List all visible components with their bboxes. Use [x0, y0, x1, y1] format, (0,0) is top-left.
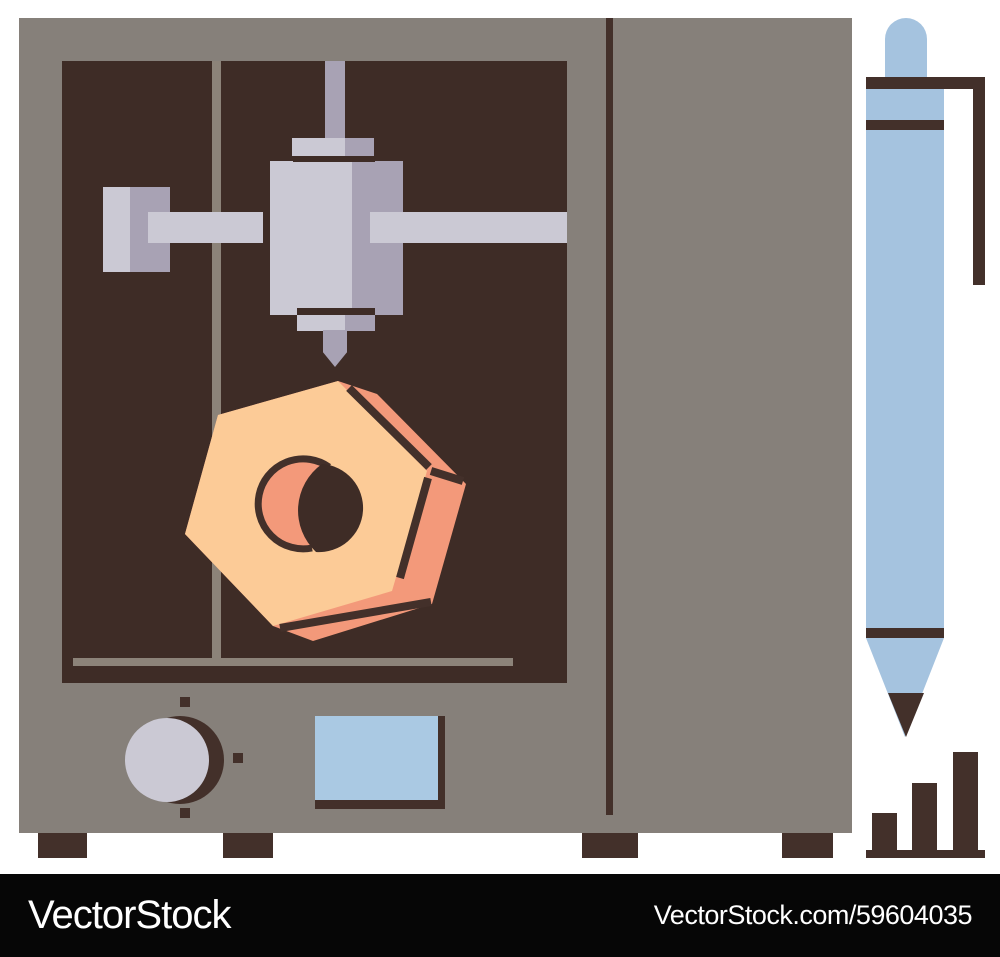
pencil-clip — [973, 89, 985, 285]
knob-tick-right — [233, 753, 243, 763]
gantry-rail-right — [370, 212, 567, 243]
printer-side-seam — [606, 18, 613, 815]
bar-chart-bar-small — [872, 813, 897, 850]
bar-chart-baseline — [866, 850, 985, 858]
pencil-body — [866, 89, 944, 638]
extruder-shaft — [325, 61, 345, 140]
printer-foot — [782, 833, 833, 858]
pencil-band-upper — [866, 120, 944, 130]
bar-chart-bar-medium — [912, 783, 937, 850]
display-screen — [315, 716, 438, 800]
knob-tick-bottom — [180, 808, 190, 818]
extruder-seam-bottom — [297, 308, 375, 315]
build-column — [212, 61, 221, 658]
extruder-collar-top-shade — [345, 138, 374, 156]
printer-foot — [582, 833, 638, 858]
control-knob — [125, 718, 209, 802]
extruder-collar-bottom-shade — [345, 315, 375, 331]
pencil-tip — [888, 693, 924, 737]
watermark-credit-text: VectorStock.com/59604035 — [654, 874, 972, 957]
bar-chart-bar-tall — [953, 752, 978, 850]
extruder-seam-top — [293, 155, 375, 162]
printer-foot — [38, 833, 87, 858]
printer-foot — [223, 833, 273, 858]
build-platform — [73, 658, 513, 666]
gantry-rail-left — [148, 212, 263, 243]
watermark-brand-text: VectorStock — [28, 874, 230, 957]
pencil-clip-bar — [866, 77, 985, 89]
knob-tick-top — [180, 697, 190, 707]
illustration-canvas: VectorStock VectorStock.com/59604035 — [0, 0, 1000, 957]
pencil-cap — [885, 18, 927, 80]
pencil-band-lower — [866, 628, 944, 638]
gantry-bracket — [103, 187, 130, 272]
